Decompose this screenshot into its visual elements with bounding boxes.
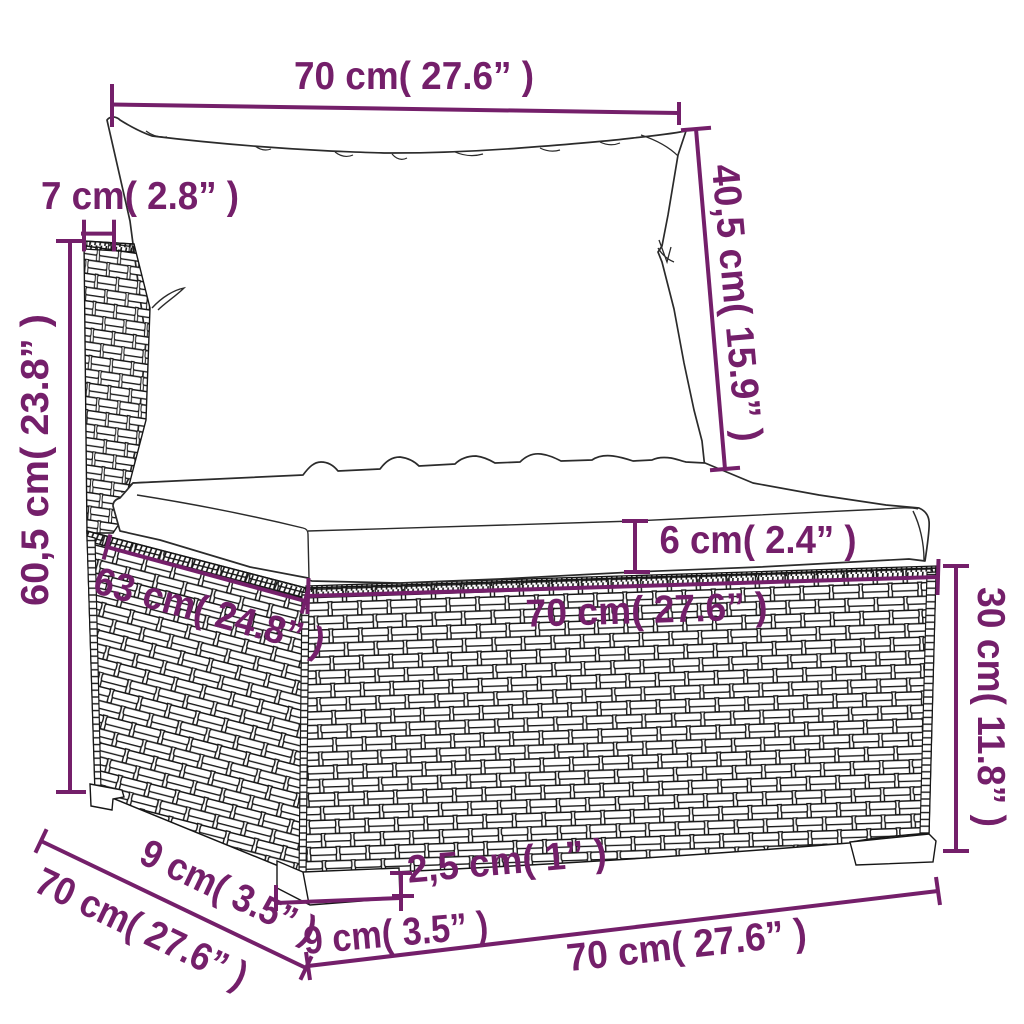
svg-text:70 cm( 27.6” ): 70 cm( 27.6” ) [294,55,534,98]
svg-text:60,5 cm( 23.8” ): 60,5 cm( 23.8” ) [14,314,57,606]
svg-text:7 cm( 2.8” ): 7 cm( 2.8” ) [41,175,239,218]
svg-text:6 cm( 2.4” ): 6 cm( 2.4” ) [660,519,857,562]
svg-text:70 cm( 27.6” ): 70 cm( 27.6” ) [525,585,768,636]
svg-text:30 cm( 11.8” ): 30 cm( 11.8” ) [969,587,1012,827]
